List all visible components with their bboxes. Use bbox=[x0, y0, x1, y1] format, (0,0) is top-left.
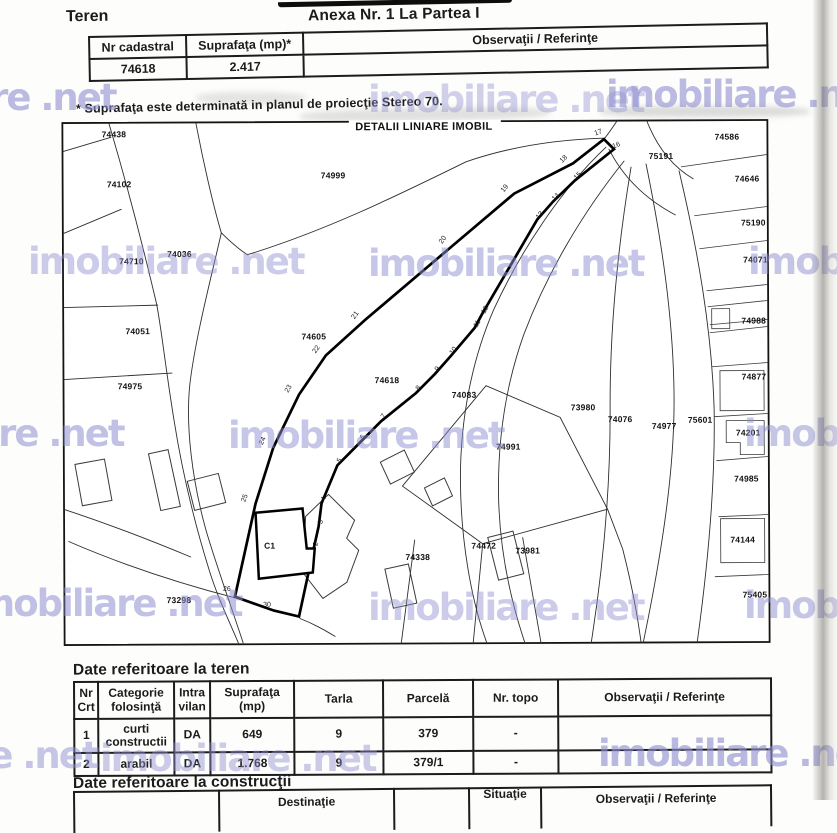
value-suprafata: 2.417 bbox=[186, 55, 303, 79]
parcel-label-74999: 74999 bbox=[321, 170, 346, 180]
cell-categorie: curti constructii bbox=[98, 718, 174, 752]
parcel-label-75190: 75190 bbox=[741, 217, 766, 227]
col-blank-2 bbox=[394, 788, 469, 830]
cell-nr: 1 bbox=[74, 719, 98, 753]
col-observatii: Observaţii / Referinţe bbox=[558, 678, 771, 716]
value-nr-cadastral: 74618 bbox=[89, 57, 186, 81]
col-observatii: Observaţii / Referinţe bbox=[541, 785, 771, 828]
parcel-label-73981: 73981 bbox=[515, 545, 540, 555]
vertex-label-26: 26 bbox=[223, 586, 231, 593]
cell-parcela: 379 bbox=[383, 717, 473, 751]
col-situatie: Situaţie bbox=[469, 788, 541, 830]
parcel-label-74977: 74977 bbox=[652, 421, 677, 431]
parcel-label-74083: 74083 bbox=[452, 390, 477, 400]
cadastral-map: C1 DETALII LINIARE IMOBIL 74438741027403… bbox=[61, 118, 773, 648]
map-title: DETALII LINIARE IMOBIL bbox=[355, 121, 492, 134]
parcel-label-74985: 74985 bbox=[734, 474, 759, 484]
scanned-cadastral-document: { "page": { "section_title": "Teren", "a… bbox=[0, 0, 837, 800]
cell-intravilan: DA bbox=[174, 752, 210, 775]
parcel-label-74076: 74076 bbox=[608, 414, 633, 424]
cell-nr-topo: - bbox=[473, 716, 558, 750]
col-tarla: Tarla bbox=[294, 680, 383, 717]
parcel-label-74036: 74036 bbox=[167, 249, 192, 259]
parcel-label-74586: 74586 bbox=[715, 132, 740, 142]
scan-edge-shadow bbox=[812, 0, 837, 800]
teren-section-heading: Date referitoare la teren bbox=[73, 660, 250, 679]
parcel-label-74646: 74646 bbox=[735, 174, 760, 184]
col-parcela: Parcelă bbox=[383, 680, 473, 717]
parcel-label-74975: 74975 bbox=[118, 381, 143, 391]
constructii-header-row: Destinaţie Situaţie Observaţii / Referin… bbox=[74, 785, 771, 833]
col-destinatie: Destinaţie bbox=[219, 789, 394, 832]
scan-smudge bbox=[600, 106, 810, 117]
parcel-label-74071: 74071 bbox=[743, 254, 768, 264]
col-suprafata: Suprafaţa (mp) bbox=[210, 681, 294, 718]
col-blank-1 bbox=[74, 791, 219, 833]
cell-parcela: 379/1 bbox=[383, 751, 473, 774]
page-title: Teren bbox=[66, 8, 109, 26]
parcel-label-73298: 73298 bbox=[167, 595, 192, 605]
col-categorie: Categorie folosinţă bbox=[98, 681, 174, 718]
col-situatie-label: Situaţie bbox=[472, 788, 538, 802]
parcel-label-74338: 74338 bbox=[405, 552, 430, 562]
parcel-label-74618: 74618 bbox=[375, 375, 400, 385]
building-c1-label: C1 bbox=[264, 541, 275, 551]
cell-tarla: 9 bbox=[294, 751, 383, 774]
col-nr-crt: Nr Crt bbox=[74, 682, 98, 719]
parcel-label-74051: 74051 bbox=[125, 326, 150, 336]
cell-suprafata: 1.768 bbox=[210, 752, 294, 775]
map-svg: C1 DETALII LINIARE IMOBIL 74438741027403… bbox=[61, 118, 773, 648]
scan-smudge bbox=[196, 92, 306, 104]
teren-header-row: Nr Crt Categorie folosinţă Intra vilan S… bbox=[74, 678, 771, 719]
parcel-label-74877: 74877 bbox=[742, 371, 767, 381]
col-intravilan: Intra vilan bbox=[174, 681, 210, 718]
cell-categorie: arabil bbox=[98, 752, 174, 775]
parcel-label-74102: 74102 bbox=[107, 179, 132, 189]
annex-title: Anexa Nr. 1 La Partea I bbox=[308, 5, 480, 26]
col-blank-label bbox=[77, 797, 216, 798]
cell-nr-topo: - bbox=[473, 750, 558, 773]
constructii-table: Destinaţie Situaţie Observaţii / Referin… bbox=[73, 784, 772, 833]
parcel-label-75601: 75601 bbox=[688, 415, 713, 425]
vertex-label-30: 30 bbox=[263, 602, 271, 609]
cell-observatii bbox=[558, 715, 771, 750]
parcel-label-74472: 74472 bbox=[471, 541, 496, 551]
col-destinatie-label: Destinaţie bbox=[222, 795, 391, 810]
table-row: 2 arabil DA 1.768 9 379/1 - bbox=[74, 749, 771, 776]
parcel-label-73980: 73980 bbox=[571, 402, 596, 412]
parcel-label-74605: 74605 bbox=[301, 331, 326, 341]
parcel-label-74144: 74144 bbox=[730, 535, 755, 545]
parcel-label-75405: 75405 bbox=[743, 589, 768, 599]
cell-nr: 2 bbox=[74, 753, 98, 776]
parcel-label-74438: 74438 bbox=[102, 129, 127, 139]
cell-tarla: 9 bbox=[294, 717, 383, 751]
parcel-label-75191: 75191 bbox=[649, 151, 674, 161]
parcel-label-74991: 74991 bbox=[496, 442, 521, 452]
table-row: 1 curti constructii DA 649 9 379 - bbox=[74, 715, 771, 753]
teren-table: Nr Crt Categorie folosinţă Intra vilan S… bbox=[73, 677, 772, 777]
col-nr-topo: Nr. topo bbox=[473, 679, 558, 716]
parcel-label-74201: 74201 bbox=[736, 428, 761, 438]
col-blank-label bbox=[397, 794, 466, 795]
parcel-label-74988: 74988 bbox=[741, 315, 766, 325]
cadastral-summary-table: Nr cadastral Suprafaţa (mp)* Observaţii … bbox=[88, 22, 769, 82]
col-observatii-label: Observaţii / Referinţe bbox=[544, 791, 768, 807]
cell-suprafata: 649 bbox=[210, 718, 294, 752]
header-suprafata: Suprafaţa (mp)* bbox=[186, 33, 303, 57]
parcel-label-74710: 74710 bbox=[119, 256, 144, 266]
header-nr-cadastral: Nr cadastral bbox=[89, 35, 186, 59]
cell-intravilan: DA bbox=[174, 718, 210, 752]
cell-observatii bbox=[558, 749, 771, 773]
